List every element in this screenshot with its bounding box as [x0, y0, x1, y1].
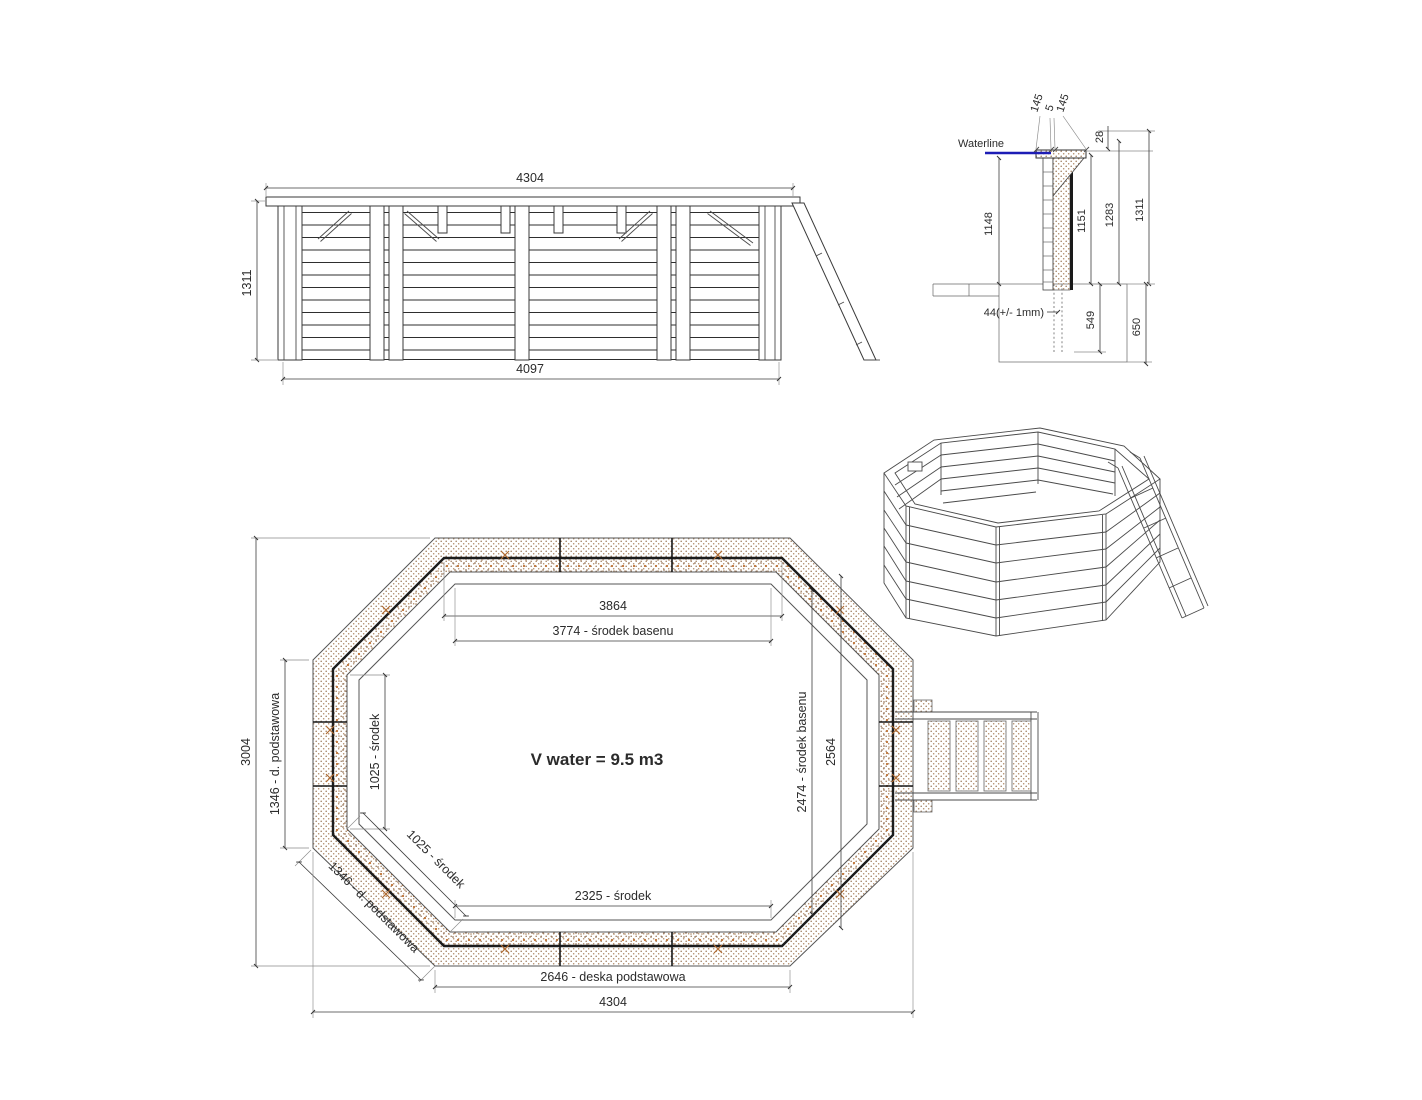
dim-plan-overall-height: 3004 — [239, 738, 253, 766]
dim-cap-left: 145 — [1029, 92, 1046, 113]
dim-water-depth: 1148 — [983, 212, 995, 236]
section-structure — [933, 150, 1127, 362]
dim-side-bottom-width: 4097 — [516, 362, 544, 376]
wall-section-view: Waterline 145 5 145 28 1148 1151 — [933, 92, 1155, 364]
dim-plan-right-outer: 2564 — [824, 738, 838, 766]
dim-embed-depth: 549 — [1085, 311, 1097, 329]
drawing-svg: 4304 1311 4097 — [0, 0, 1422, 1100]
dim-side-top-width: 4304 — [516, 171, 544, 185]
volume-label: V water = 9.5 m3 — [531, 750, 664, 769]
side-coping-board — [266, 197, 800, 206]
side-wall-posts — [278, 205, 781, 360]
dim-total-height: 1311 — [1134, 198, 1146, 222]
side-pool-structure — [266, 197, 880, 360]
dim-plan-inner-width: 3864 — [599, 599, 627, 613]
dim-plan-bottom-center: 2325 - środek — [575, 889, 652, 903]
dim-cap-right: 145 — [1055, 92, 1072, 113]
side-hanger-clips — [438, 206, 626, 233]
dim-cap-overhang: 28 — [1094, 131, 1106, 143]
plan-ladder — [895, 700, 1038, 812]
dim-plan-overall-width: 4304 — [599, 995, 627, 1009]
dim-upper-height: 1283 — [1104, 203, 1116, 227]
iso-pool-body — [884, 428, 1160, 636]
side-elevation-view: 4304 1311 4097 — [240, 171, 880, 385]
isometric-view — [884, 428, 1208, 636]
section-foundation — [999, 284, 1127, 362]
dim-plan-base-board: 2646 - deska podstawowa — [540, 970, 685, 984]
iso-skimmer — [908, 462, 922, 471]
side-ladder — [792, 203, 880, 360]
dim-plan-left-center: 1025 - środek — [368, 713, 382, 790]
dim-side-height: 1311 — [240, 270, 254, 297]
dim-inner-height: 1151 — [1076, 209, 1088, 233]
dim-plan-left-board: 1346 - d. podstawowa — [268, 693, 282, 815]
dim-board-note: 44(+/- 1mm) — [984, 307, 1044, 319]
waterline-label: Waterline — [958, 138, 1004, 150]
dim-foundation-depth: 650 — [1131, 318, 1143, 336]
dim-plan-center-width: 3774 - środek basenu — [553, 624, 674, 638]
pool-technical-drawing: 4304 1311 4097 — [0, 0, 1422, 1100]
dim-plan-right-center: 2474 - środek basenu — [795, 691, 809, 812]
